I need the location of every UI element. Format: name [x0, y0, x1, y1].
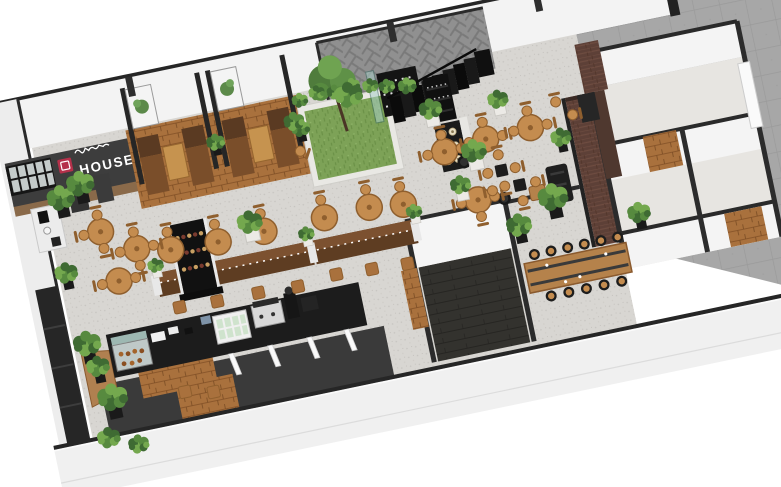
- wood-stool: [329, 267, 343, 281]
- wood-stool: [173, 300, 187, 314]
- brand-badge: [57, 157, 74, 174]
- cafe-floorplan-render: HOUSE: [0, 0, 781, 487]
- wood-stool: [400, 257, 414, 271]
- wood-stool: [365, 262, 379, 276]
- wood-stool: [207, 385, 221, 399]
- bistro-table: [513, 178, 527, 192]
- wood-stool: [178, 385, 192, 399]
- wood-stool: [291, 279, 305, 293]
- isometric-scene: HOUSE: [0, 0, 781, 487]
- bistro-table: [494, 163, 508, 177]
- wood-stool: [210, 294, 224, 308]
- pastry-case: [111, 331, 153, 372]
- wood-stool: [251, 286, 265, 300]
- restroom-door: [643, 130, 684, 172]
